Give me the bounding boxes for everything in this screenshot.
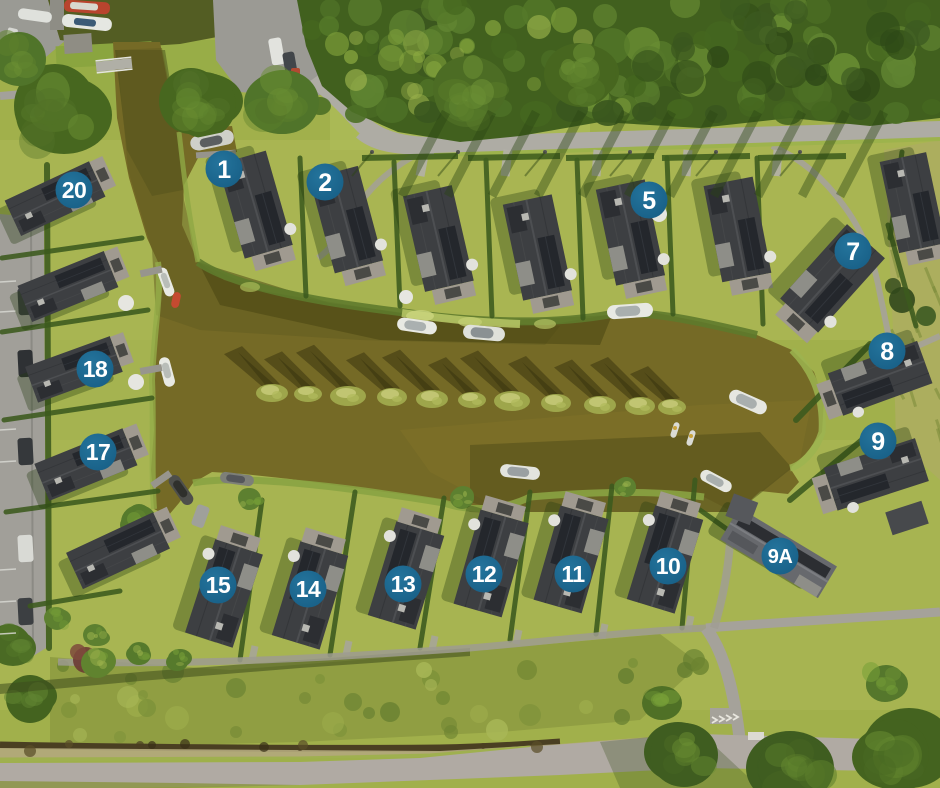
svg-text:13: 13	[391, 571, 416, 597]
svg-text:9: 9	[871, 428, 884, 456]
svg-text:17: 17	[86, 439, 111, 465]
svg-text:18: 18	[83, 356, 108, 382]
svg-text:10: 10	[656, 553, 681, 579]
svg-text:15: 15	[206, 572, 231, 598]
svg-text:1: 1	[217, 156, 231, 184]
svg-text:5: 5	[642, 187, 656, 215]
svg-text:14: 14	[296, 576, 321, 602]
svg-text:2: 2	[318, 169, 331, 197]
svg-text:12: 12	[472, 561, 497, 587]
svg-text:8: 8	[880, 338, 894, 366]
svg-text:20: 20	[62, 177, 87, 203]
svg-text:7: 7	[846, 238, 859, 266]
svg-text:9A: 9A	[768, 546, 793, 568]
svg-text:11: 11	[561, 561, 585, 587]
